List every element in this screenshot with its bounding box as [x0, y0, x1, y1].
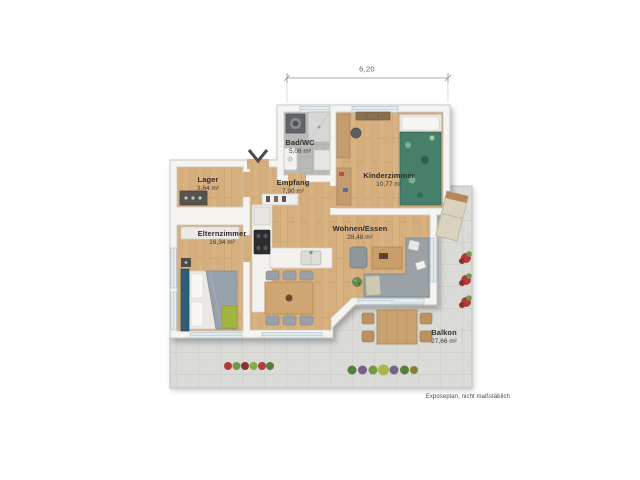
kids-bed: [399, 114, 442, 206]
window-bath-top: [300, 107, 330, 113]
shower: [308, 112, 330, 142]
washing-machine: [286, 114, 305, 133]
sink: [301, 251, 321, 265]
armchair: [350, 247, 367, 268]
chair: [362, 313, 374, 324]
cooktop: [254, 230, 270, 254]
chair: [266, 316, 279, 325]
hall-sideboard: [262, 194, 298, 205]
parents-bed: [181, 269, 237, 331]
chair: [300, 316, 313, 325]
window-parents-left-1: [171, 248, 177, 288]
chair: [266, 271, 279, 280]
coffee-table: [372, 247, 402, 269]
window-parents-bottom: [190, 333, 242, 339]
dimension-line: [284, 73, 451, 102]
nightstand: [181, 258, 191, 267]
storage-shelf: [180, 191, 207, 205]
sliding-door-balcony: [358, 299, 424, 305]
floorplan-page: 6,20 Lager 3,64 m² Elternzimmer 16,34 m²…: [0, 0, 640, 480]
dining-set: [265, 271, 313, 325]
plant: [353, 278, 362, 287]
parents-wardrobe: [181, 227, 239, 239]
window-kids-top: [352, 107, 398, 113]
chair: [420, 313, 432, 324]
desk-chair: [351, 128, 361, 138]
window-dining-bottom: [262, 333, 322, 339]
fridge: [254, 207, 270, 225]
washbasin: [284, 148, 297, 170]
chair: [362, 331, 374, 342]
chair: [283, 271, 296, 280]
bath-cabinet: [314, 150, 330, 170]
glass-door-living-right: [430, 238, 436, 282]
kids-shelf: [356, 112, 390, 120]
window-parents-left-2: [171, 292, 177, 330]
chair: [420, 331, 432, 342]
chair: [300, 271, 313, 280]
chair: [283, 316, 296, 325]
floorplan-drawing: [0, 0, 640, 480]
kids-dresser: [337, 168, 351, 205]
